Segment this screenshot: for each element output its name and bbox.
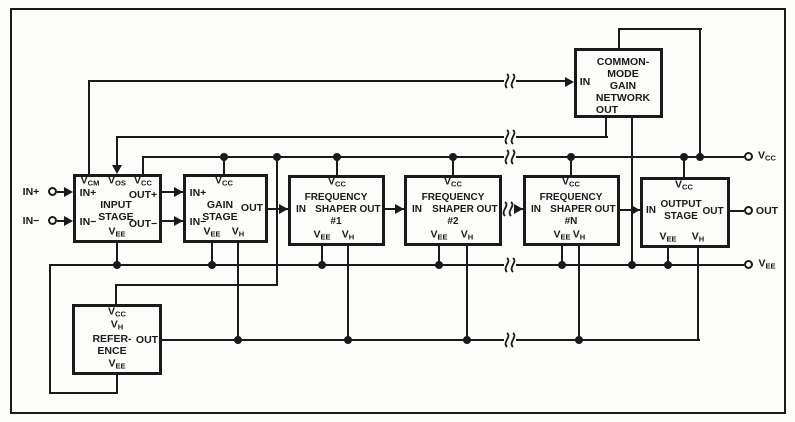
- pin-label-out: OUT: [136, 334, 158, 346]
- junction-dot: [220, 153, 228, 161]
- pin-label-vh: VH: [692, 230, 704, 245]
- flow-arrow: [174, 216, 183, 226]
- pin-label-vee: VEE: [553, 228, 570, 243]
- pin-label-in: IN: [646, 205, 656, 217]
- pin-label-in: IN: [412, 204, 422, 216]
- junction-dot: [558, 261, 566, 269]
- vcm-wire: [88, 80, 90, 175]
- flow-arrow: [174, 187, 183, 197]
- pin-label-vh: VH: [342, 228, 354, 243]
- block-diagram-canvas: VCM VOS VCC IN+ IN− OUT+ OUT− INPUT STAG…: [0, 0, 795, 422]
- terminal-label-vcc: VCC: [758, 149, 776, 164]
- vcc-rail: [143, 156, 744, 158]
- block-title-output-stage: OUTPUT STAGE: [660, 199, 701, 223]
- block-title-gain-stage: GAIN STAGE: [202, 199, 237, 223]
- input-vcc-wire: [142, 156, 144, 175]
- pin-label-vee: VEE: [108, 225, 125, 240]
- junction-dot: [333, 153, 341, 161]
- common-mode-vcc-riser: [699, 28, 701, 158]
- flow-arrow: [279, 204, 288, 214]
- block-title-frequency-shaper-2: FREQUENCY SHAPER #2: [422, 192, 485, 228]
- flow-arrow-down: [112, 165, 122, 174]
- line-break-icon: [502, 255, 518, 275]
- terminal-label-vee: VEE: [758, 257, 775, 272]
- pin-label-in-minus: IN−: [80, 216, 97, 228]
- block-title-common-mode-gain-network: COMMON- MODE GAIN NETWORK: [596, 56, 650, 104]
- junction-dot: [575, 336, 583, 344]
- line-break-icon: [502, 147, 518, 167]
- line-break-icon: [502, 127, 518, 147]
- reference-vee-wire: [116, 374, 118, 394]
- junction-dot: [208, 261, 216, 269]
- junction-dot: [435, 261, 443, 269]
- junction-dot: [344, 336, 352, 344]
- pin-label-vcc: VCC: [562, 175, 580, 190]
- terminal-node-vee: [744, 260, 753, 269]
- pin-label-vcc: VCC: [134, 174, 152, 189]
- shaperN-vh-wire: [578, 245, 580, 341]
- pin-label-vh: VH: [232, 225, 244, 240]
- pin-label-vee: VEE: [430, 228, 447, 243]
- shaper1-vh-wire: [347, 245, 349, 341]
- shaper2-vh-wire: [466, 245, 468, 341]
- terminal-node-vcc: [744, 152, 753, 161]
- pin-label-vh: VH: [461, 228, 473, 243]
- terminal-node-in-minus: [48, 216, 57, 225]
- flow-arrow: [64, 216, 73, 226]
- pin-label-out: OUT: [702, 206, 723, 218]
- pin-label-vcc: VCC: [215, 174, 233, 189]
- pin-label-vh: VH: [111, 318, 123, 333]
- block-title-reference: REFER- ENCE: [92, 333, 131, 357]
- flow-arrow: [631, 205, 640, 215]
- flow-arrow: [395, 204, 404, 214]
- junction-dot: [463, 336, 471, 344]
- pin-label-vcc: VCC: [675, 178, 693, 193]
- gain-vh-wire: [237, 242, 239, 341]
- vee-rail: [50, 264, 744, 266]
- block-title-frequency-shaper-1: FREQUENCY SHAPER #1: [305, 192, 368, 228]
- pin-label-vee: VEE: [108, 357, 125, 372]
- line-break-icon: [502, 71, 518, 91]
- block-title-input-stage: INPUT STAGE: [98, 199, 133, 223]
- terminal-label-out: OUT: [756, 205, 778, 217]
- pin-label-in: IN: [580, 76, 591, 88]
- terminal-node-out: [744, 206, 753, 215]
- vcm-wire: [89, 80, 567, 82]
- flow-arrow: [565, 77, 574, 87]
- junction-dot: [449, 153, 457, 161]
- reference-vcc-riser: [276, 156, 278, 286]
- flow-arrow: [514, 204, 523, 214]
- pin-label-vee: VEE: [659, 230, 676, 245]
- pin-label-vos: VOS: [108, 174, 126, 189]
- pin-label-vee: VEE: [203, 225, 220, 240]
- junction-dot: [273, 153, 281, 161]
- junction-dot: [628, 261, 636, 269]
- common-mode-vcc-wire: [619, 28, 702, 30]
- vh-rail: [162, 339, 700, 341]
- pin-label-vee: VEE: [313, 228, 330, 243]
- pin-label-out: OUT: [596, 104, 618, 116]
- junction-dot: [664, 261, 672, 269]
- common-mode-vee-wire: [631, 117, 633, 266]
- common-mode-out-wire: [605, 117, 607, 138]
- block-title-frequency-shaper-n: FREQUENCY SHAPER #N: [540, 192, 603, 228]
- output-vh-wire: [697, 247, 699, 341]
- terminal-label-in-minus: IN−: [23, 215, 40, 227]
- junction-dot: [113, 261, 121, 269]
- reference-vcc-wire: [116, 284, 278, 286]
- pin-label-in-plus: IN+: [190, 187, 207, 199]
- pin-label-in-plus: IN+: [80, 187, 97, 199]
- signal-wire-output-to-terminal: [730, 210, 744, 212]
- line-break-icon: [502, 330, 518, 350]
- flow-arrow: [64, 187, 73, 197]
- reference-vcc-wire: [115, 284, 117, 305]
- junction-dot: [680, 153, 688, 161]
- junction-dot: [567, 153, 575, 161]
- pin-label-vcc: VCC: [328, 175, 346, 190]
- pin-label-out: OUT: [241, 202, 263, 214]
- terminal-label-in-plus: IN+: [23, 186, 40, 198]
- pin-label-vh: VH: [573, 228, 585, 243]
- junction-dot: [234, 336, 242, 344]
- vos-wire: [117, 136, 608, 138]
- common-mode-vcc-wire: [618, 28, 620, 49]
- reference-vee-wire: [50, 392, 118, 394]
- vee-rail-drop: [49, 264, 51, 394]
- junction-dot: [696, 153, 704, 161]
- pin-label-vcc: VCC: [444, 175, 462, 190]
- terminal-node-in-plus: [48, 187, 57, 196]
- vos-wire: [116, 136, 118, 167]
- junction-dot: [318, 261, 326, 269]
